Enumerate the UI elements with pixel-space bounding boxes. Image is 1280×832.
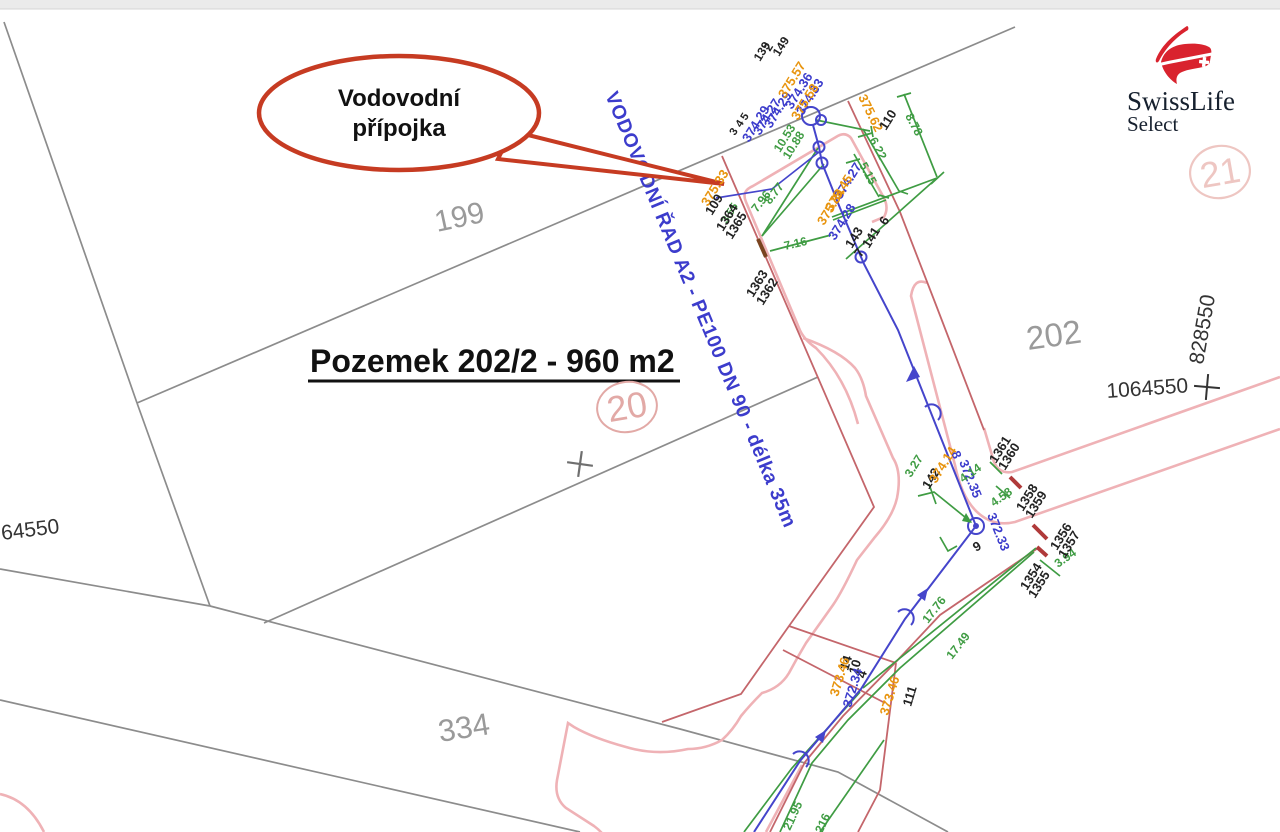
svg-text:přípojka: přípojka [352, 115, 446, 142]
svg-text:21: 21 [1197, 149, 1244, 196]
svg-text:20: 20 [604, 383, 651, 430]
svg-text:Vodovodní: Vodovodní [338, 85, 462, 112]
svg-text:Pozemek 202/2 - 960 m2: Pozemek 202/2 - 960 m2 [310, 343, 675, 379]
svg-text:202: 202 [1024, 313, 1084, 357]
svg-text:Select: Select [1127, 112, 1178, 136]
